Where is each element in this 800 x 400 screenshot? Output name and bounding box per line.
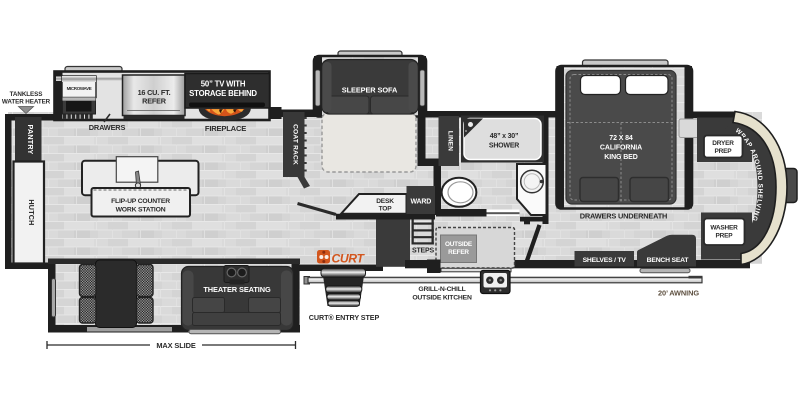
svg-text:PREP: PREP [715,148,733,155]
svg-text:LINEN: LINEN [447,131,454,151]
svg-text:SHOWER: SHOWER [489,143,519,150]
svg-text:DRYER: DRYER [712,140,734,147]
svg-text:KING BED: KING BED [604,154,637,161]
svg-text:SLEEPER SOFA: SLEEPER SOFA [342,86,398,95]
svg-text:48” x 30”: 48” x 30” [490,133,519,140]
svg-text:MAX SLIDE: MAX SLIDE [156,341,196,350]
svg-text:TANKLESS: TANKLESS [10,91,43,98]
svg-text:DESK: DESK [376,198,394,205]
svg-text:TOP: TOP [379,206,393,213]
svg-text:THEATER SEATING: THEATER SEATING [203,285,271,294]
svg-text:BENCH SEAT: BENCH SEAT [647,257,690,264]
svg-text:50” TV WITH: 50” TV WITH [201,80,246,89]
svg-text:WORK STATION: WORK STATION [116,207,166,214]
svg-text:WATER HEATER: WATER HEATER [2,99,51,106]
svg-text:STEPS: STEPS [412,248,434,255]
svg-text:CURT: CURT [332,252,366,266]
svg-text:OUTSIDE KITCHEN: OUTSIDE KITCHEN [412,295,472,302]
svg-text:PANTRY: PANTRY [26,125,35,155]
svg-text:PREP: PREP [716,233,734,240]
svg-text:CURT® ENTRY STEP: CURT® ENTRY STEP [309,313,380,322]
svg-text:FIREPLACE: FIREPLACE [205,124,246,133]
svg-text:WARD: WARD [411,199,432,206]
svg-text:DRAWERS UNDERNEATH: DRAWERS UNDERNEATH [580,212,667,221]
svg-text:CALIFORNIA: CALIFORNIA [600,145,642,152]
svg-text:DRAWERS: DRAWERS [89,123,126,132]
svg-text:FLIP-UP COUNTER: FLIP-UP COUNTER [111,198,170,205]
svg-text:HUTCH: HUTCH [27,199,36,225]
svg-text:72 X 84: 72 X 84 [609,135,633,142]
svg-text:SHELVES / TV: SHELVES / TV [583,257,627,264]
svg-text:20’ AWNING: 20’ AWNING [658,289,699,298]
svg-text:GRILL-N-CHILL: GRILL-N-CHILL [418,286,465,293]
svg-text:OUTSIDE: OUTSIDE [445,241,473,248]
svg-text:WASHER: WASHER [710,225,738,232]
svg-text:REFER: REFER [448,249,469,256]
svg-text:REFER: REFER [142,97,167,106]
svg-text:STORAGE BEHIND: STORAGE BEHIND [189,89,257,98]
svg-text:COAT RACK: COAT RACK [292,124,299,165]
svg-text:MICROWAVE: MICROWAVE [67,86,92,91]
